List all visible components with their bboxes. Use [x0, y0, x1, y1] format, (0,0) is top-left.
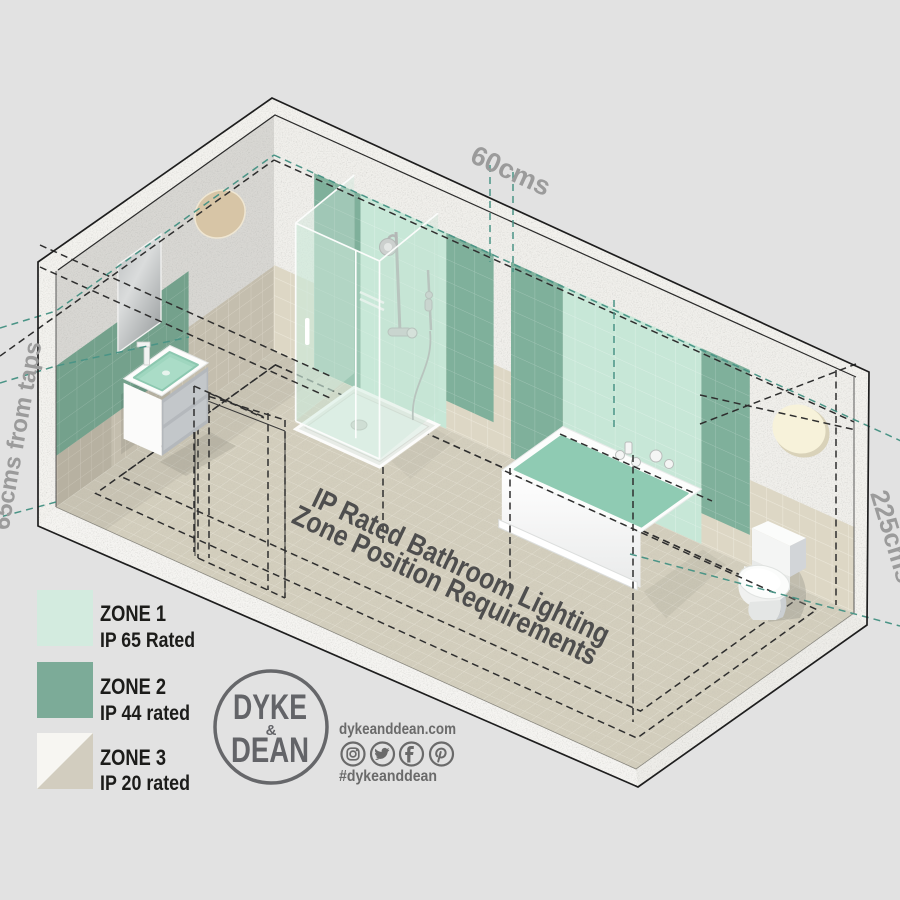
svg-text:DEAN: DEAN — [231, 731, 309, 770]
svg-text:IP 65 Rated: IP 65 Rated — [100, 629, 195, 652]
svg-text:ZONE 2: ZONE 2 — [100, 674, 166, 699]
svg-text:ZONE 1: ZONE 1 — [100, 601, 166, 626]
svg-text:#dykeanddean: #dykeanddean — [339, 768, 437, 785]
svg-text:IP 20 rated: IP 20 rated — [100, 772, 190, 795]
svg-text:dykeanddean.com: dykeanddean.com — [339, 721, 456, 738]
svg-text:IP 44 rated: IP 44 rated — [100, 702, 190, 725]
svg-text:ZONE 3: ZONE 3 — [100, 745, 166, 770]
